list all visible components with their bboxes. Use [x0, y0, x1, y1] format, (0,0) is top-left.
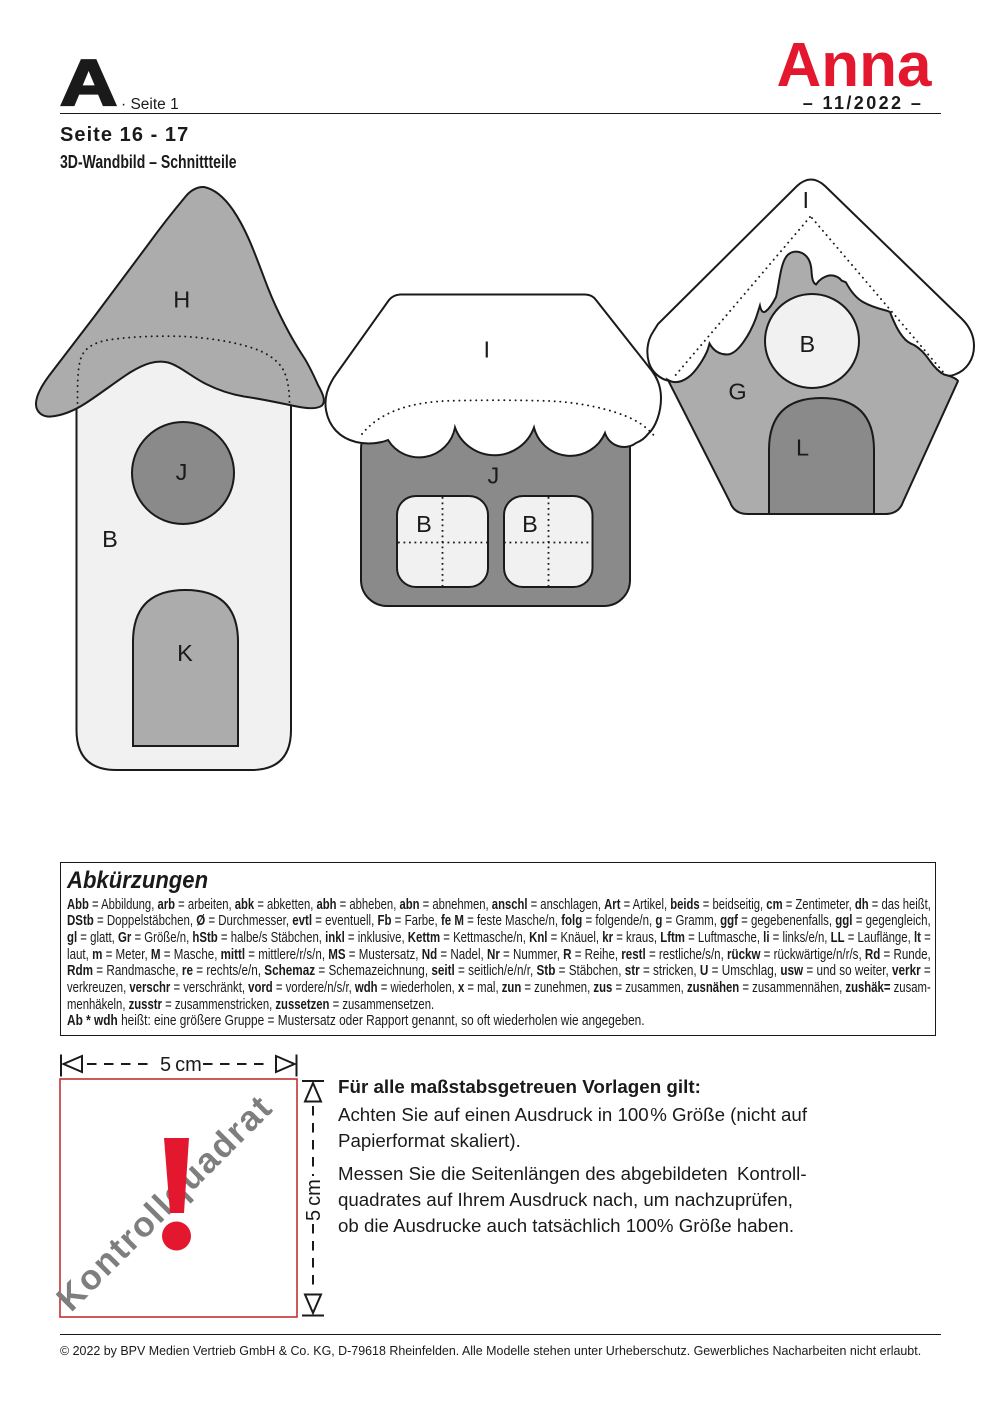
svg-text:B: B [416, 511, 432, 537]
svg-text:H: H [173, 287, 190, 313]
svg-text:L: L [796, 435, 809, 461]
svg-text:B: B [800, 331, 816, 357]
svg-text:5 cm: 5 cm [303, 1179, 325, 1221]
svg-text:K: K [177, 640, 193, 666]
svg-text:B: B [102, 526, 118, 552]
svg-text:I: I [803, 187, 810, 213]
svg-text:B: B [522, 511, 538, 537]
svg-text:J: J [488, 463, 500, 489]
svg-text:5 cm: 5 cm [160, 1054, 202, 1076]
svg-text:G: G [728, 378, 746, 404]
svg-text:J: J [176, 459, 188, 485]
svg-text:I: I [484, 337, 491, 363]
